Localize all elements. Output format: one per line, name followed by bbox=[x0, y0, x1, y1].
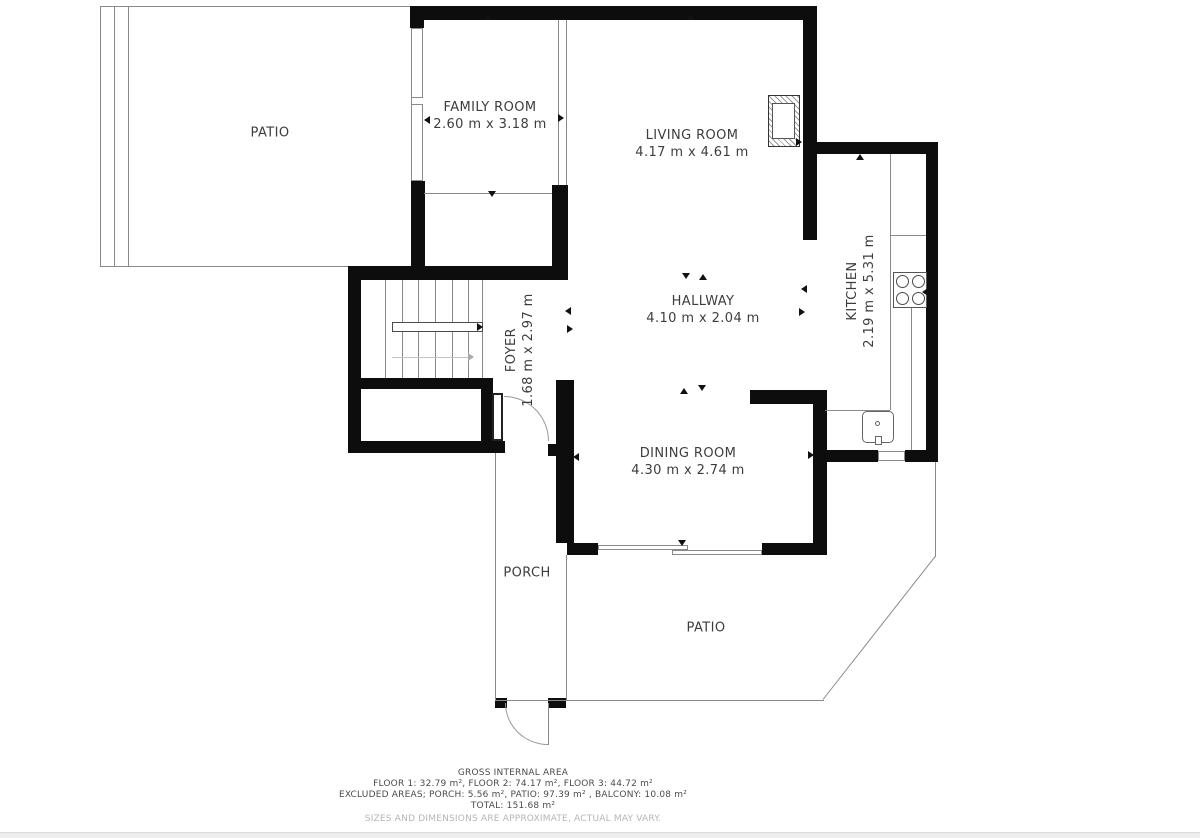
tick-icon bbox=[698, 385, 706, 391]
porch-bottom-line bbox=[495, 700, 566, 701]
tick-icon bbox=[573, 453, 579, 461]
room-dims: 1.68 m x 2.97 m bbox=[520, 293, 537, 406]
stair-handrail bbox=[392, 322, 483, 332]
porch-right-line bbox=[566, 555, 567, 700]
area-summary: GROSS INTERNAL AREA FLOOR 1: 32.79 m², F… bbox=[113, 768, 913, 825]
room-name: FOYER bbox=[503, 293, 520, 406]
patio-edge-line bbox=[128, 6, 129, 267]
wall-dining-right bbox=[813, 390, 827, 555]
tick-icon bbox=[484, 14, 492, 20]
counter-edge bbox=[890, 154, 891, 410]
stair-direction-arrow-icon bbox=[468, 353, 474, 361]
room-name: FAMILY ROOM bbox=[433, 99, 546, 116]
area-summary-total: TOTAL: 151.68 m² bbox=[113, 801, 913, 812]
sink-faucet-icon bbox=[875, 421, 880, 426]
wall-foyer-top bbox=[348, 266, 568, 280]
room-label-living: LIVING ROOM 4.17 m x 4.61 m bbox=[635, 127, 748, 161]
handrail-arrow-icon bbox=[477, 323, 483, 331]
room-name: PATIO bbox=[251, 125, 290, 142]
area-summary-floors: FLOOR 1: 32.79 m², FLOOR 2: 74.17 m², FL… bbox=[113, 779, 913, 790]
wall-closet-top bbox=[358, 378, 493, 389]
family-room-window bbox=[411, 28, 423, 98]
porch-door-swing bbox=[505, 703, 548, 745]
room-name: LIVING ROOM bbox=[635, 127, 748, 144]
wall-balcony-right bbox=[552, 185, 568, 277]
wall-balcony-left bbox=[411, 181, 425, 270]
room-dims: 4.10 m x 2.04 m bbox=[646, 310, 759, 327]
room-dims: 2.19 m x 5.31 m bbox=[861, 234, 878, 347]
wall-dining-bottom-left bbox=[567, 543, 598, 555]
sink-tap-icon bbox=[875, 436, 882, 445]
stove-burner-icon bbox=[896, 275, 909, 288]
fireplace-opening bbox=[772, 103, 795, 139]
wall-kitchen-bottom-right bbox=[905, 450, 938, 462]
stair-direction-line bbox=[392, 357, 468, 358]
wall-kitchen-bottom-left bbox=[827, 450, 878, 462]
room-name: PATIO bbox=[687, 620, 726, 637]
stove-burner-icon bbox=[912, 275, 925, 288]
wall-foyer-door-jamb bbox=[548, 444, 574, 456]
tick-icon bbox=[567, 325, 573, 333]
tick-icon bbox=[488, 191, 496, 197]
counter-divider bbox=[890, 235, 926, 236]
counter-edge bbox=[911, 308, 912, 450]
wall-corner-post bbox=[410, 6, 424, 28]
tick-icon bbox=[678, 540, 686, 546]
area-summary-title: GROSS INTERNAL AREA bbox=[113, 768, 913, 779]
room-label-dining: DINING ROOM 4.30 m x 2.74 m bbox=[631, 445, 744, 479]
room-label-kitchen: KITCHEN 2.19 m x 5.31 m bbox=[844, 234, 878, 347]
room-dims: 2.60 m x 3.18 m bbox=[433, 116, 546, 133]
patio-bottom-edge bbox=[566, 700, 824, 701]
patio-edge-line bbox=[114, 6, 115, 267]
stair-tread bbox=[385, 280, 386, 378]
room-dims: 4.30 m x 2.74 m bbox=[631, 462, 744, 479]
wall-top bbox=[418, 6, 817, 20]
room-name: PORCH bbox=[503, 565, 550, 582]
tick-icon bbox=[424, 116, 430, 124]
area-summary-excluded: EXCLUDED AREAS; PORCH: 5.56 m², PATIO: 9… bbox=[113, 790, 913, 801]
tick-icon bbox=[680, 388, 688, 394]
patio-diagonal-edge bbox=[823, 556, 936, 700]
patio-bottom-right-line bbox=[935, 462, 936, 557]
room-label-family: FAMILY ROOM 2.60 m x 3.18 m bbox=[433, 99, 546, 133]
wall-living-kitchen bbox=[803, 6, 817, 240]
room-dims: 4.17 m x 4.61 m bbox=[635, 144, 748, 161]
tick-icon bbox=[799, 308, 805, 316]
floor-plan: PATIO FAMILY ROOM 2.60 m x 3.18 m LIVING… bbox=[0, 0, 1200, 838]
room-label-hallway: HALLWAY 4.10 m x 2.04 m bbox=[646, 293, 759, 327]
tick-icon bbox=[687, 14, 695, 20]
wall-hallway-bottom bbox=[750, 390, 827, 404]
kitchen-window bbox=[878, 451, 905, 461]
room-label-patio-bottom: PATIO bbox=[687, 620, 726, 637]
porch-left-line bbox=[495, 453, 496, 700]
area-summary-disclaimer: SIZES AND DIMENSIONS ARE APPROXIMATE, AC… bbox=[113, 814, 913, 825]
sliding-door-panel bbox=[672, 550, 762, 555]
wall-kitchen-right bbox=[926, 142, 938, 462]
tick-icon bbox=[796, 138, 802, 146]
wall-dining-bottom-right bbox=[762, 543, 827, 555]
room-label-patio-top: PATIO bbox=[251, 125, 290, 142]
tick-icon bbox=[699, 274, 707, 280]
bottom-bar bbox=[0, 832, 1200, 838]
tick-icon bbox=[922, 288, 928, 296]
room-name: KITCHEN bbox=[844, 234, 861, 347]
tick-icon bbox=[682, 273, 690, 279]
tick-icon bbox=[808, 451, 814, 459]
tick-icon bbox=[565, 307, 571, 315]
family-living-partition bbox=[558, 20, 567, 185]
porch-door-leaf bbox=[548, 703, 549, 745]
room-label-porch: PORCH bbox=[503, 565, 550, 582]
tick-icon bbox=[856, 154, 864, 160]
wall-foyer-left bbox=[348, 266, 361, 453]
family-room-window bbox=[411, 104, 423, 181]
tick-icon bbox=[558, 114, 564, 122]
wall-foyer-dining bbox=[556, 380, 574, 543]
room-name: DINING ROOM bbox=[631, 445, 744, 462]
tick-icon bbox=[801, 285, 807, 293]
wall-kitchen-top bbox=[817, 142, 938, 154]
entry-door-leaf bbox=[492, 393, 503, 441]
stove-burner-icon bbox=[896, 292, 909, 305]
room-label-foyer: FOYER 1.68 m x 2.97 m bbox=[503, 293, 537, 406]
room-name: HALLWAY bbox=[646, 293, 759, 310]
